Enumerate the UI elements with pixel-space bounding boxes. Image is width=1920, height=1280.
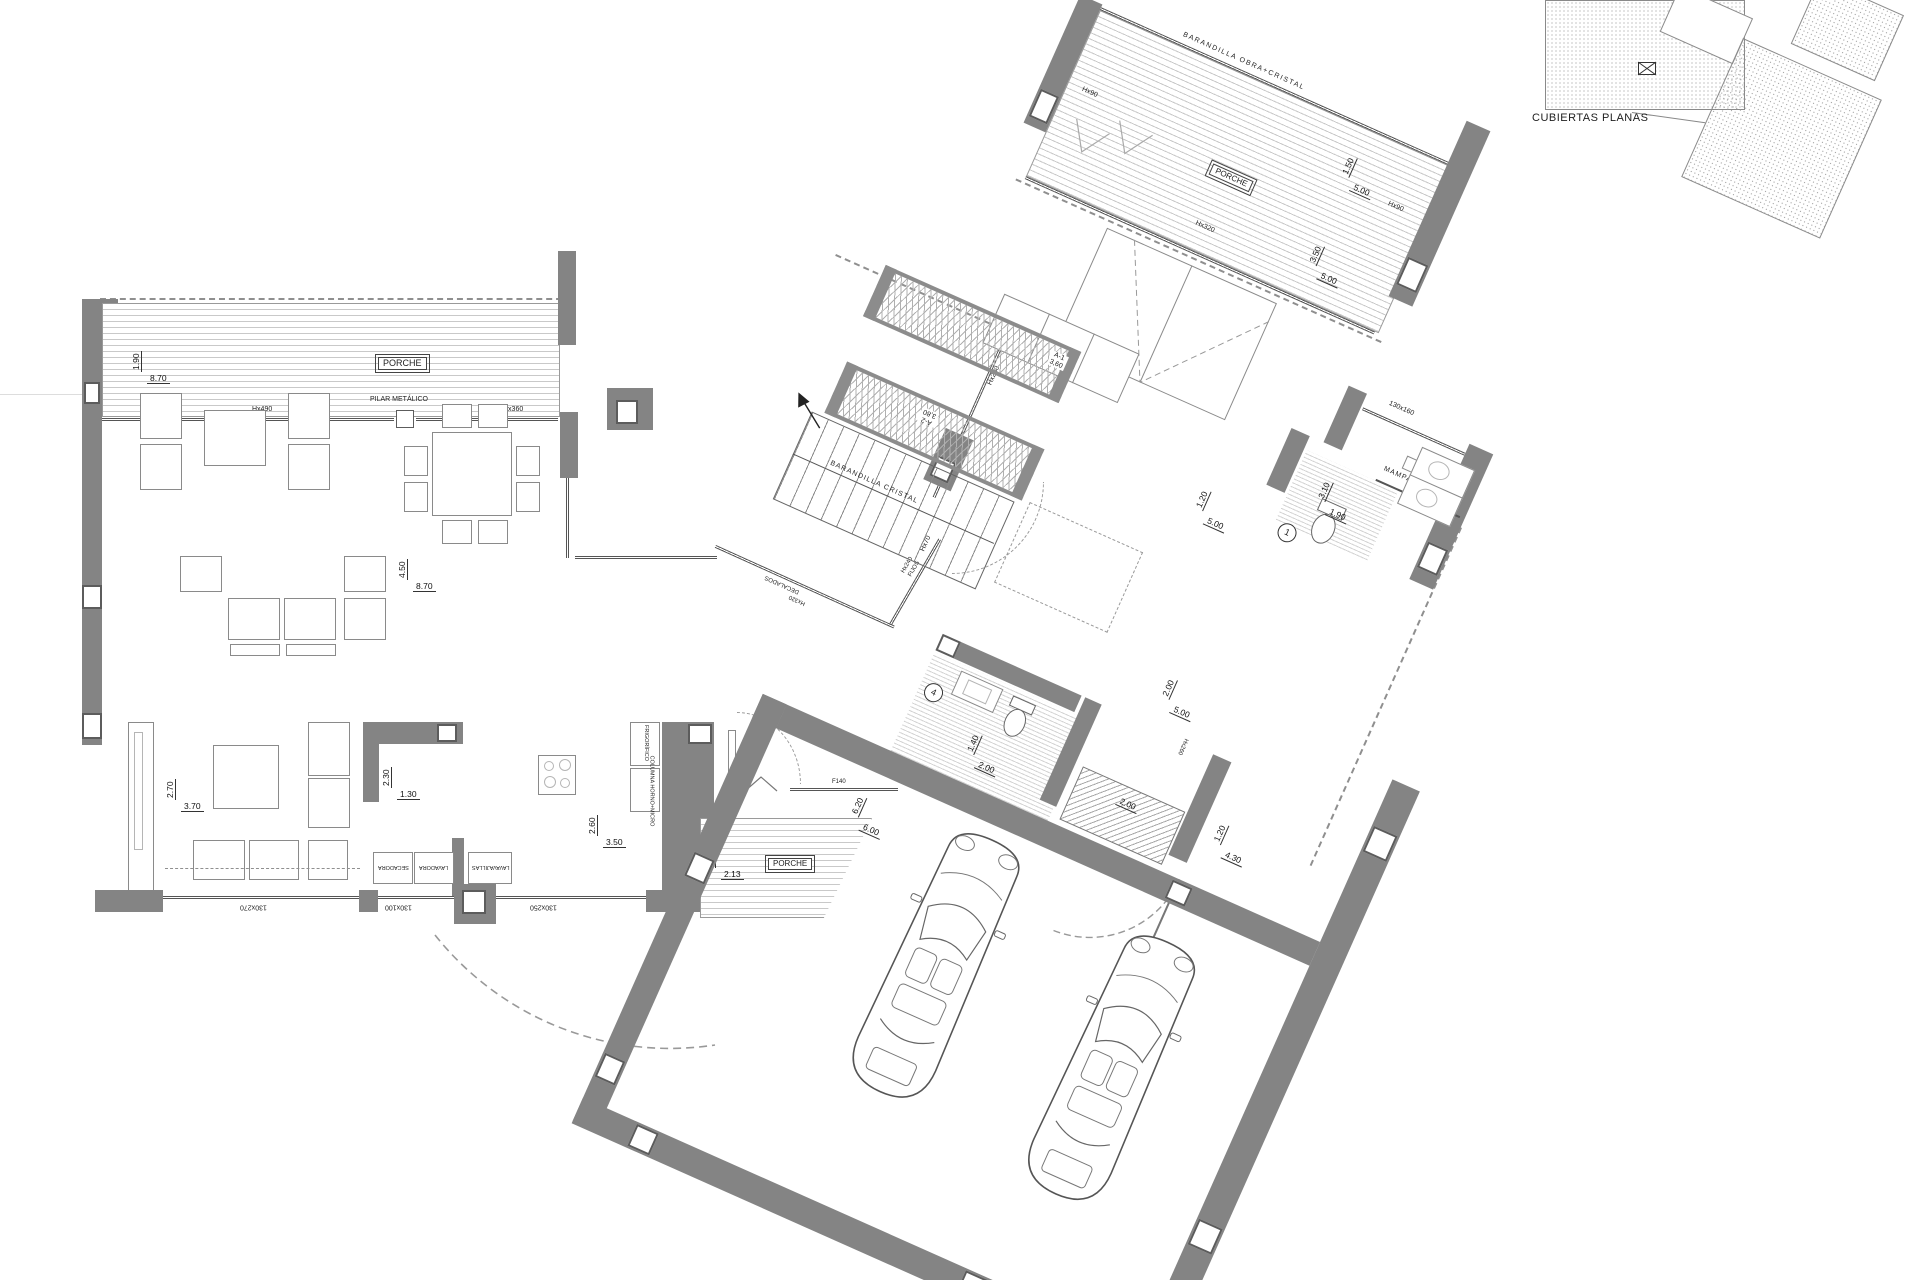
living-east-wall [560,412,578,478]
hob-burner [560,778,570,788]
sofa-seat [249,840,299,880]
dining-chair [516,446,540,476]
dining-chair [442,404,472,428]
window-130x250 [496,896,646,899]
porch-nw-dim: 1.90 8.70 [140,342,200,372]
coffee-table [204,410,266,466]
dining-chair [478,404,508,428]
cabinet [308,778,350,828]
living-dim: 4.50 8.70 [406,550,466,580]
washer-label: LAVADORA [419,864,448,870]
hob-burner [544,776,556,788]
wardrobe-inner [134,732,143,850]
kitchen-dim: 2.60 3.50 [596,806,656,836]
salita-dim: 2.70 3.70 [174,770,234,800]
vestibule-dim: 1.20 4.30 [1219,817,1286,869]
sofa-seat [344,598,386,640]
kitchen-east-window [688,724,712,744]
mid-pillar-window [616,400,638,424]
reference-line [0,394,84,395]
hob [538,755,576,795]
armchair [288,444,330,490]
dining-chair [404,446,428,476]
armchair [288,393,330,439]
f140-label: F140 [832,779,846,786]
laundry-dim: 2.30 1.30 [390,758,450,788]
cabinet [308,722,350,776]
window-130x250-label: 130x250 [530,903,557,911]
dryer-label: SECADORA [378,864,409,870]
window-130x100-label: 130x100 [385,903,412,911]
armchair [140,393,182,439]
dining-chair [478,520,508,544]
hob-burner [559,759,571,771]
west-wall-window [82,585,102,609]
sofa-seat [180,556,222,592]
west-wall-window [82,713,102,739]
laundry-wall-left [363,744,379,802]
stair-dim-b: 2.00 5.00 [1168,672,1235,724]
laundry-window [437,724,457,742]
window-130x270-label: 130x270 [240,903,267,911]
dining-chair [442,520,472,544]
dining-chair [516,482,540,512]
window-130x100 [378,896,454,899]
window-f140 [790,788,898,791]
hx260-label: Hx260 [1176,737,1189,756]
roof-hatch-symbol [1638,62,1656,75]
sofa-seat [284,598,336,640]
garage-dim: 6.20 6.00 [857,789,924,841]
armchair [140,444,182,490]
hob-burner [544,761,554,771]
dishwasher-label: LAVAVAJILLAS [472,864,510,870]
porch-nw-label: PORCHE [378,357,427,370]
west-wall-window [84,382,100,404]
car [822,807,1050,1125]
pilar-metalico-label: PILAR METÁLICO [370,396,428,404]
living-east-glass [566,478,569,558]
south-pillar-window [462,890,486,914]
window-130x270 [163,896,359,899]
ottoman [286,644,336,656]
porch-east-pillar [558,251,576,345]
sofa-seat [344,556,386,592]
sofa-seat [308,840,348,880]
sill-dashes [165,868,360,869]
court-glass-north [575,556,717,559]
dining-chair [404,482,428,512]
car [998,909,1226,1227]
floor-plan-canvas: PORCHE 1.90 8.70 Hx490 PILAR METÁLICO Hx… [0,0,1920,1280]
south-wall [359,890,378,912]
porch-roof-dashed-edge [100,298,572,300]
stair-dim-a: 1.20 5.00 [1201,483,1268,535]
south-wall [95,890,163,912]
bath1-step-wall [1323,386,1366,451]
bath1-window-label: 130x160 [1387,400,1415,418]
steel-pillar [396,410,414,428]
bath1-window [1362,407,1466,455]
sofa-seat [228,598,280,640]
ottoman [230,644,280,656]
glass-wall [715,545,895,628]
porch-s-label: PORCHE [768,858,812,870]
keyplan-label: CUBIERTAS PLANAS [1532,112,1648,124]
decalados-height-label: Hx320 [788,593,807,606]
sofa-seat [193,840,245,880]
dining-table [432,432,512,516]
